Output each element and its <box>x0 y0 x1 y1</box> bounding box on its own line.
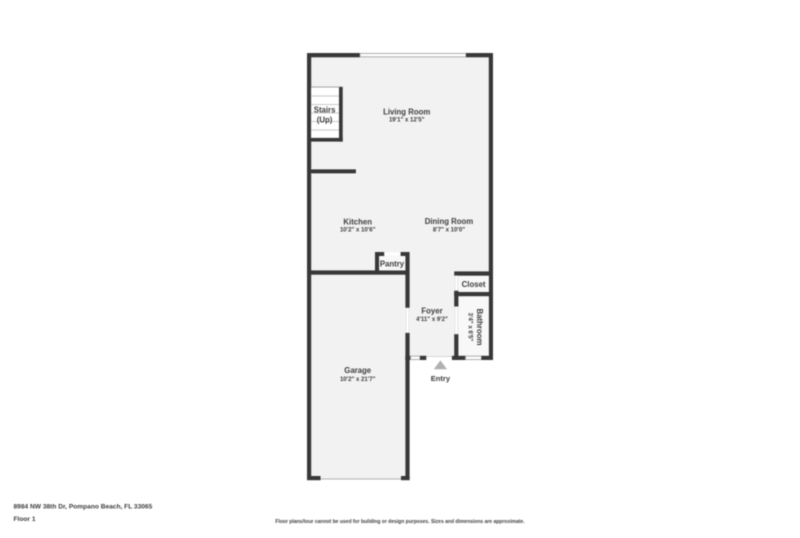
svg-text:Dining Room: Dining Room <box>425 217 474 226</box>
svg-text:Living Room: Living Room <box>383 107 430 116</box>
svg-text:4'11" x 9'2": 4'11" x 9'2" <box>416 317 448 323</box>
svg-text:Stairs: Stairs <box>314 105 336 114</box>
svg-text:Bathroom: Bathroom <box>475 309 484 346</box>
svg-text:Floor 1: Floor 1 <box>14 516 36 523</box>
svg-text:10'2" x 21'7": 10'2" x 21'7" <box>340 377 376 383</box>
svg-text:Kitchen: Kitchen <box>343 218 372 227</box>
svg-text:Garage: Garage <box>344 366 372 375</box>
svg-text:Floor plans/tour cannot be use: Floor plans/tour cannot be used for buil… <box>275 519 525 525</box>
svg-text:(Up): (Up) <box>317 115 333 124</box>
svg-text:Foyer: Foyer <box>421 306 442 315</box>
svg-text:3'4" x 6'5": 3'4" x 6'5" <box>466 313 472 342</box>
svg-text:8984 NW 38th Dr, Pompano Beach: 8984 NW 38th Dr, Pompano Beach, FL 33065 <box>14 504 153 511</box>
svg-text:Entry: Entry <box>431 374 451 383</box>
svg-text:10'2" x 10'6": 10'2" x 10'6" <box>340 228 376 234</box>
svg-text:Pantry: Pantry <box>380 260 405 269</box>
svg-text:8'7" x 10'0": 8'7" x 10'0" <box>433 227 465 233</box>
svg-text:19'1" x 12'5": 19'1" x 12'5" <box>389 118 425 124</box>
svg-text:Closet: Closet <box>462 280 486 289</box>
